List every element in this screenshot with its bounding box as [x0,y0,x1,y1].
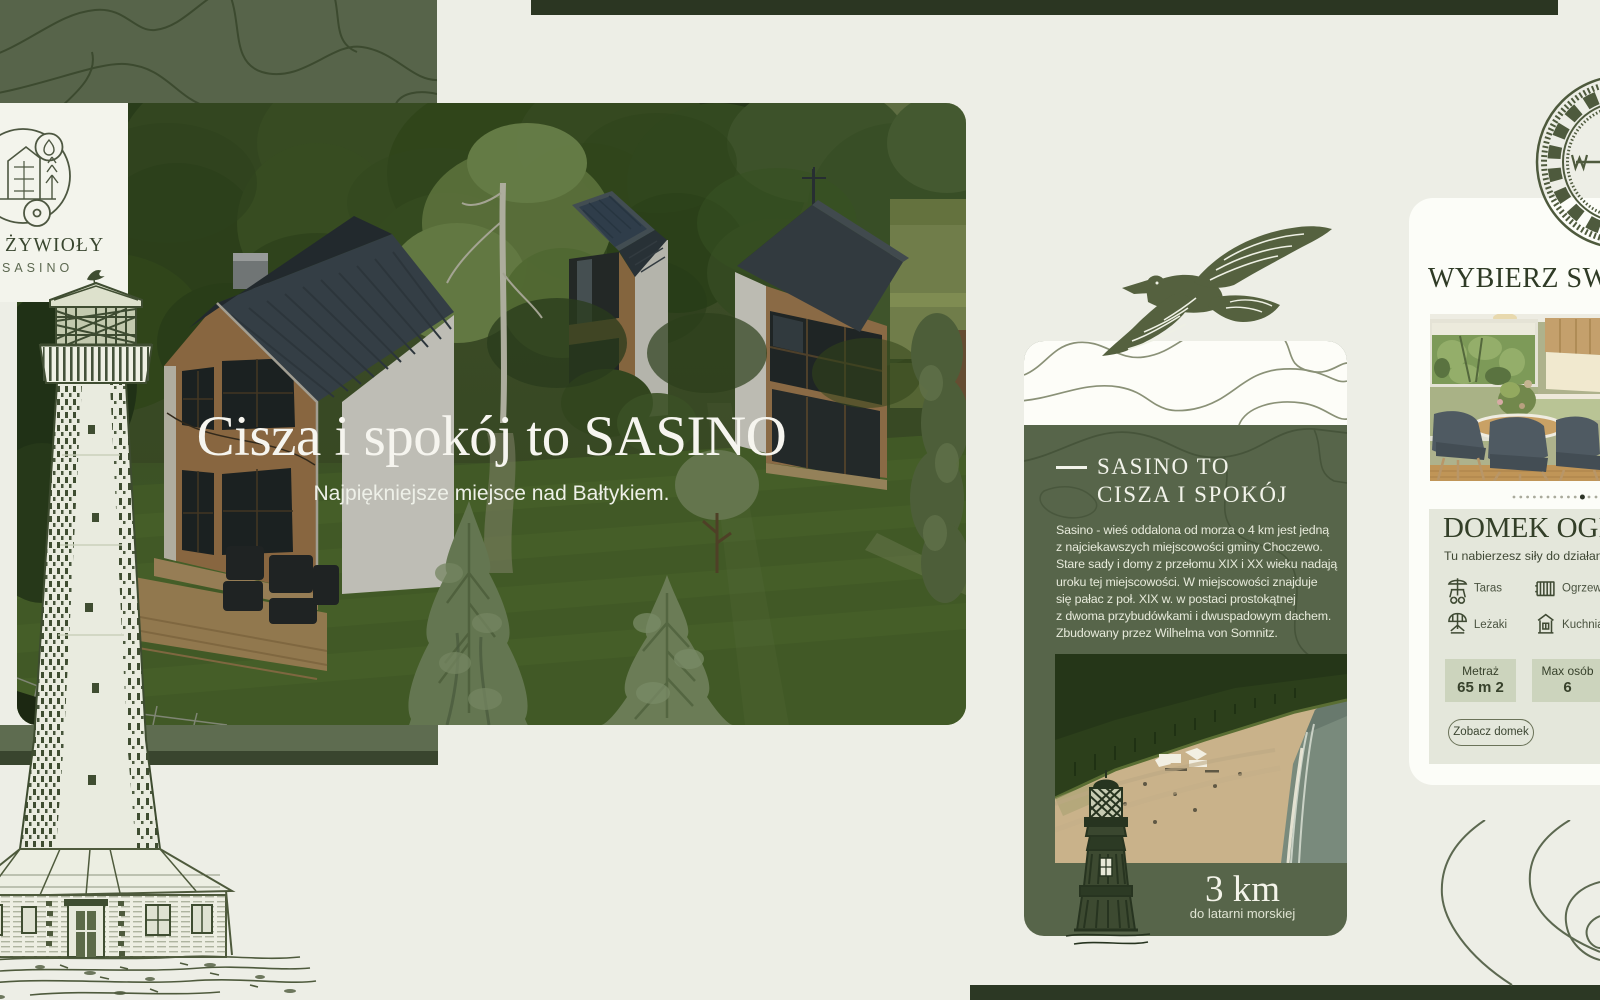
svg-text:Kuchnia: Kuchnia [1562,619,1600,631]
svg-text:Ogrzewanie: Ogrzewanie [1562,583,1600,595]
svg-text:Taras: Taras [1474,583,1502,595]
svg-text:Leżaki: Leżaki [1474,619,1507,631]
